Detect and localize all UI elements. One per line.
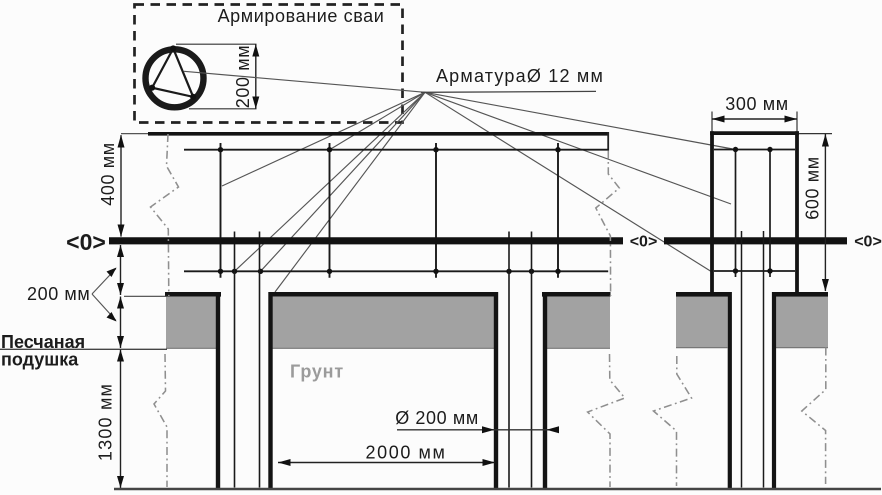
svg-text:Грунт: Грунт	[290, 362, 344, 382]
svg-text:Армирование сваи: Армирование сваи	[218, 6, 385, 26]
svg-text:400 мм: 400 мм	[98, 142, 118, 205]
svg-text:1300 мм: 1300 мм	[96, 383, 116, 461]
svg-text:Ø 200 мм: Ø 200 мм	[395, 408, 479, 428]
svg-text:600 мм: 600 мм	[803, 156, 823, 219]
svg-text:АрматураØ 12 мм: АрматураØ 12 мм	[436, 66, 604, 86]
svg-text:200 мм: 200 мм	[27, 284, 90, 304]
svg-text:<0>: <0>	[66, 229, 106, 255]
svg-text:300 мм: 300 мм	[725, 94, 788, 114]
svg-text:<0>: <0>	[854, 234, 882, 251]
svg-text:подушка: подушка	[1, 350, 79, 370]
svg-text:2000 мм: 2000 мм	[366, 443, 447, 463]
svg-text:<0>: <0>	[630, 234, 658, 251]
